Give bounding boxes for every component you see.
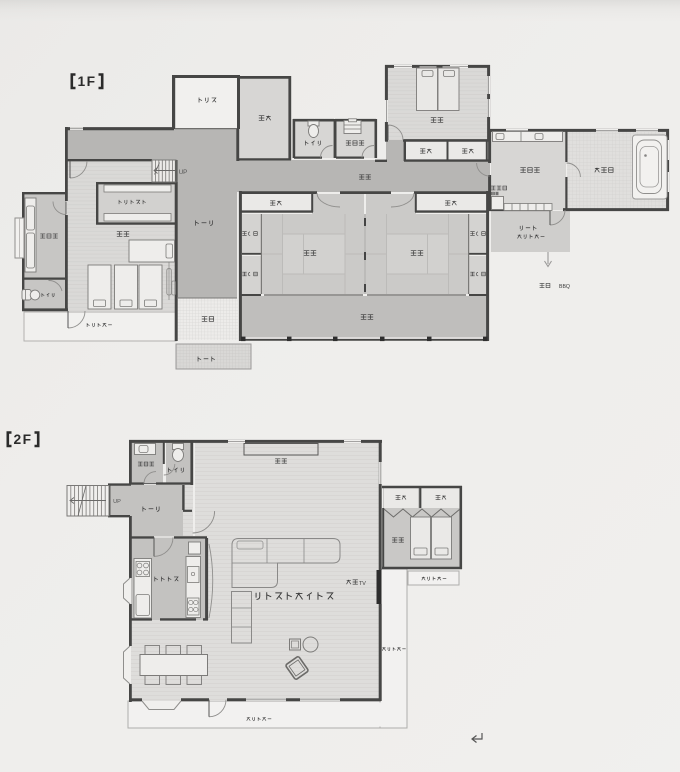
svg-text:UP: UP bbox=[113, 499, 121, 505]
svg-text:TV: TV bbox=[359, 581, 366, 587]
svg-text:UP: UP bbox=[179, 169, 188, 176]
svg-text:1F: 1F bbox=[77, 74, 96, 89]
svg-text:BBQ: BBQ bbox=[559, 284, 570, 290]
svg-text:2F: 2F bbox=[13, 432, 32, 447]
